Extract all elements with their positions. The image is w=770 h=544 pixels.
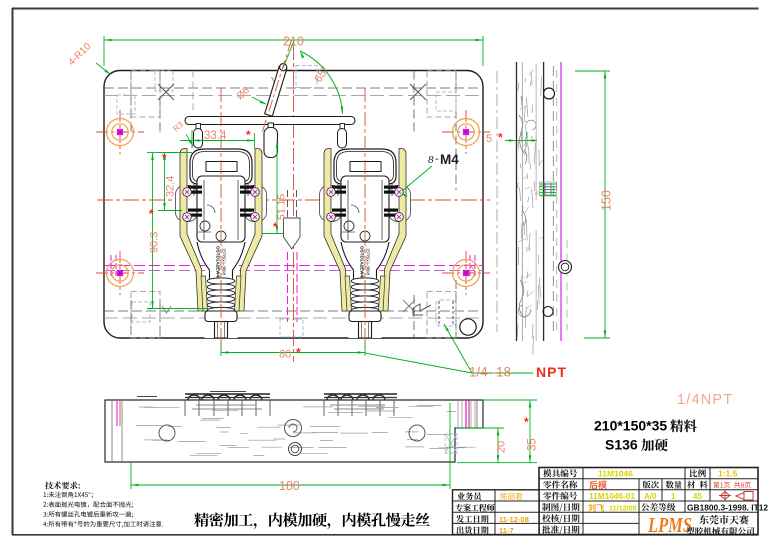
svg-text:80: 80 [279, 349, 291, 361]
svg-text:1:1.5: 1:1.5 [718, 469, 738, 479]
svg-text:1/4 -18: 1/4 -18 [469, 365, 511, 380]
svg-text:1/4NPT: 1/4NPT [677, 392, 733, 408]
svg-text:*: * [246, 128, 251, 142]
svg-text:90.3: 90.3 [149, 232, 161, 253]
svg-text:*: * [498, 131, 503, 145]
svg-text:51.15: 51.15 [276, 194, 288, 220]
svg-text:*: * [524, 415, 529, 429]
svg-text:32.4: 32.4 [165, 176, 177, 197]
svg-text:11/12/08: 11/12/08 [609, 503, 637, 512]
svg-text:M4: M4 [440, 152, 459, 167]
svg-text:LPMS: LPMS [647, 513, 692, 537]
svg-text:5: 5 [486, 133, 492, 145]
svg-text:45: 45 [693, 492, 702, 501]
svg-text:1: 1 [671, 492, 676, 501]
svg-text:A/0: A/0 [644, 492, 657, 501]
svg-text:*: * [296, 346, 301, 360]
svg-text:20: 20 [496, 441, 508, 453]
svg-text:180: 180 [279, 479, 300, 493]
svg-text:8: 8 [428, 154, 434, 166]
svg-text:11M1046: 11M1046 [598, 469, 633, 479]
svg-text:210*150*35: 210*150*35 [594, 418, 667, 434]
svg-text:*: * [273, 220, 278, 234]
svg-text:GB1800.3-1998. IT12: GB1800.3-1998. IT12 [687, 503, 768, 513]
svg-text:150: 150 [600, 190, 614, 211]
svg-text:*: * [162, 151, 167, 165]
svg-text:11-12-08: 11-12-08 [499, 515, 529, 524]
svg-text:11-7: 11-7 [499, 526, 514, 535]
svg-text:-: - [435, 153, 439, 165]
svg-text:S136: S136 [605, 437, 638, 453]
svg-text:35: 35 [527, 438, 539, 451]
svg-text:*: * [149, 207, 154, 221]
svg-text:NPT: NPT [536, 364, 567, 380]
svg-text:11M1046-01: 11M1046-01 [589, 491, 636, 501]
svg-text:33.4: 33.4 [204, 130, 227, 142]
